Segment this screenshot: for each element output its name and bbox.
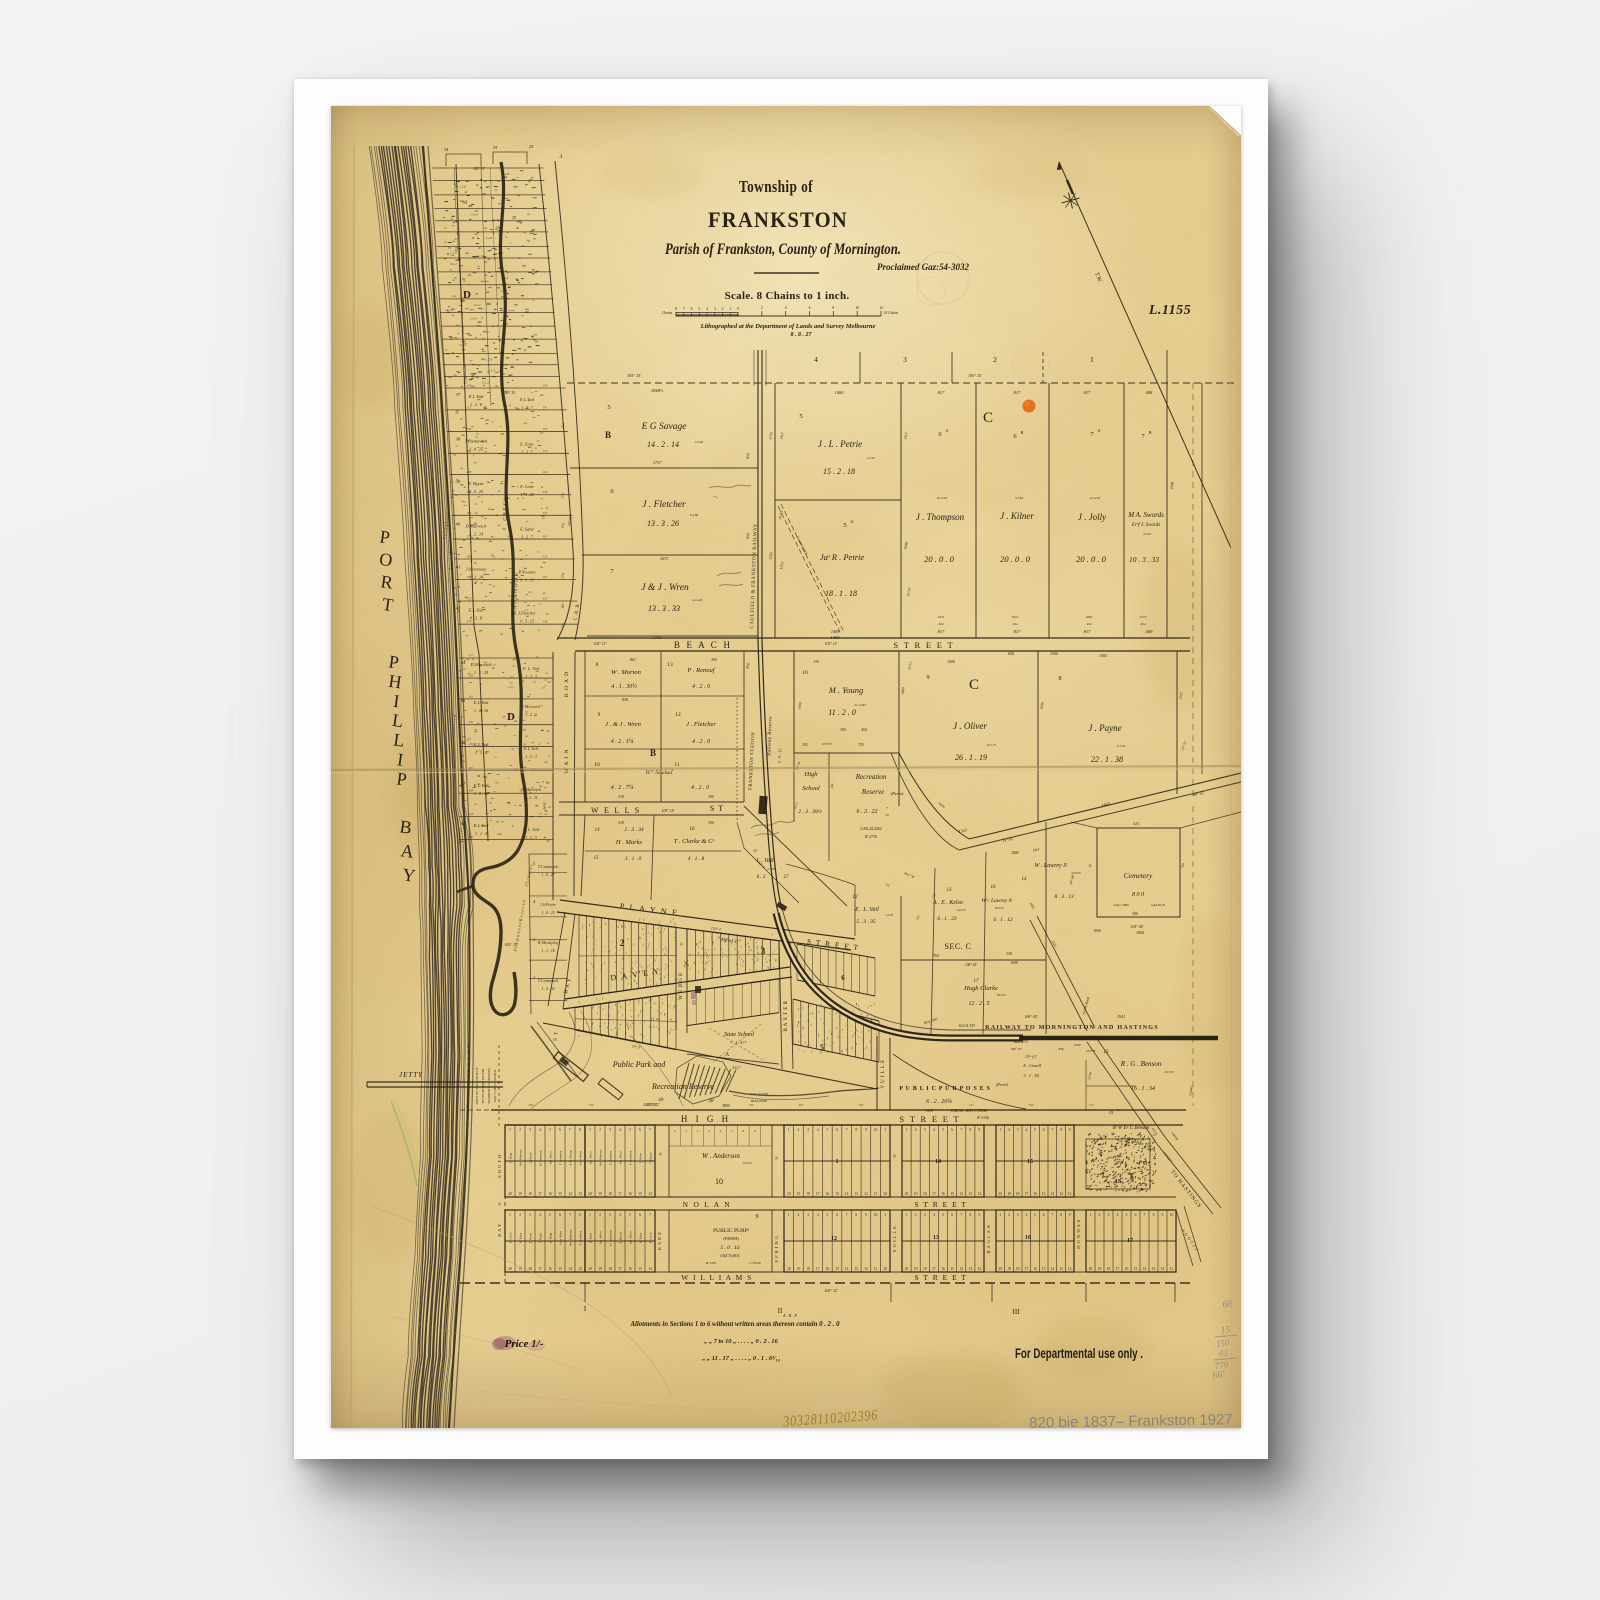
- svg-text:GAZ.J.1866: GAZ.J.1866: [1113, 903, 1129, 907]
- svg-text:16 . 1 . 34: 16 . 1 . 34: [1131, 1085, 1155, 1092]
- svg-text:21.12.83: 21.12.83: [854, 703, 866, 707]
- svg-text:494: 494: [1086, 622, 1091, 626]
- svg-text:13: 13: [969, 1267, 973, 1271]
- svg-text:S T R E E T: S T R E E T: [915, 1200, 968, 1209]
- svg-text:PUBLIC PURPˢ: PUBLIC PURPˢ: [713, 1228, 750, 1234]
- svg-text:0 . 3 . 13: 0 . 3 . 13: [520, 619, 533, 623]
- svg-text:17: 17: [1116, 1267, 1120, 1271]
- svg-text:105° 15′: 105° 15′: [473, 167, 485, 171]
- svg-text:9: 9: [865, 1213, 867, 1217]
- svg-text:4: 4: [706, 307, 708, 311]
- svg-text:S T: S T: [710, 804, 724, 813]
- svg-text:590: 590: [543, 427, 548, 431]
- svg-text:38: 38: [456, 437, 461, 442]
- svg-text:16: 16: [826, 1192, 830, 1196]
- svg-text:2.4.91: 2.4.91: [867, 456, 875, 460]
- svg-text:19: 19: [914, 1267, 918, 1271]
- svg-text:27: 27: [784, 875, 790, 880]
- svg-text:300: 300: [708, 795, 714, 799]
- svg-text:6 . 1 . 12: 6 . 1 . 12: [993, 917, 1013, 923]
- svg-text:10: 10: [715, 1177, 723, 1186]
- svg-text:520: 520: [469, 812, 474, 816]
- svg-text:15: 15: [594, 856, 600, 861]
- svg-text:817: 817: [1084, 629, 1092, 634]
- svg-text:K.W. Doag: K.W. Doag: [569, 1150, 573, 1166]
- svg-text:6 . 2: 6 . 2: [757, 875, 766, 880]
- svg-text:61: 61: [1218, 1347, 1228, 1358]
- svg-text:478: 478: [467, 384, 472, 388]
- svg-text:6.1.70: 6.1.70: [1117, 744, 1125, 748]
- svg-text:R . G . Benson: R . G . Benson: [1120, 1060, 1162, 1068]
- svg-text:Wᵐ. Lawrey Sʳ: Wᵐ. Lawrey Sʳ: [981, 898, 1013, 904]
- svg-text:477: 477: [469, 654, 474, 658]
- svg-text:GAZ.76.4835: GAZ.76.4835: [720, 1254, 740, 1258]
- svg-text:A. Brera: A. Brera: [619, 1232, 623, 1245]
- svg-text:Sᵗ: Sᵗ: [679, 942, 684, 945]
- svg-text:15: 15: [950, 1267, 954, 1271]
- svg-text:J . Fletcher: J . Fletcher: [642, 500, 686, 510]
- svg-text:A . Casell: A . Casell: [1022, 1063, 1042, 1068]
- svg-text:1 . 2 . 14: 1 . 2 . 14: [469, 531, 483, 536]
- svg-text:7: 7: [1144, 1213, 1146, 1217]
- svg-text:2 . 3 . 34: 2 . 3 . 34: [624, 826, 644, 833]
- svg-text:18: 18: [806, 1267, 810, 1271]
- svg-text:10: 10: [802, 670, 808, 676]
- svg-text:R. Keys: R. Keys: [639, 1232, 643, 1244]
- svg-text:State School: State School: [724, 1032, 754, 1038]
- svg-text:7: 7: [569, 1128, 571, 1132]
- svg-text:612-4 T.P.: 612-4 T.P.: [959, 1023, 975, 1028]
- svg-text:A: A: [400, 840, 416, 862]
- svg-text:1 . 1 . 16: 1 . 1 . 16: [541, 949, 554, 953]
- svg-text:P . Renouf: P . Renouf: [686, 667, 715, 674]
- svg-text:GAZ.73.1963 T.I.M.24034: GAZ.73.1963 T.I.M.24034: [493, 1069, 497, 1102]
- svg-text:R. Keys: R. Keys: [519, 1232, 523, 1244]
- svg-text:Wm Murray: Wm Murray: [519, 1149, 523, 1166]
- svg-text:12: 12: [978, 1267, 982, 1271]
- svg-text:Allotments in Sections 1 to 6: Allotments in Sections 1 to 6 without wr…: [629, 1321, 840, 1328]
- svg-text:16: 16: [826, 1267, 830, 1271]
- svg-text:820 bie 1837– Frankston 1927: 820 bie 1837– Frankston 1927: [1029, 1411, 1233, 1428]
- svg-text:9: 9: [1069, 1213, 1071, 1217]
- svg-text:66′: 66′: [1212, 1369, 1226, 1382]
- svg-text:Wm Murray: Wm Murray: [599, 1149, 603, 1166]
- svg-text:17: 17: [816, 1267, 820, 1271]
- svg-text:817: 817: [938, 390, 946, 395]
- svg-text:541: 541: [469, 720, 474, 724]
- svg-text:A . E . Kelso: A . E . Kelso: [932, 900, 963, 906]
- svg-text:13: 13: [1152, 1267, 1156, 1271]
- svg-text:20: 20: [588, 1192, 592, 1196]
- svg-text:20: 20: [905, 1192, 909, 1196]
- svg-text:Sᵗ: Sᵗ: [497, 1202, 502, 1205]
- svg-text:4: 4: [817, 1128, 819, 1132]
- svg-text:9: 9: [865, 1128, 867, 1132]
- svg-text:1.3.70: 1.3.70: [885, 913, 893, 917]
- svg-text:1310: 1310: [925, 1109, 933, 1113]
- svg-text:18: 18: [1016, 1192, 1020, 1196]
- svg-text:20°5′: 20°5′: [543, 802, 548, 811]
- svg-text:2: 2: [599, 1213, 601, 1217]
- svg-text:13 . 3 . 33: 13 . 3 . 33: [648, 604, 680, 613]
- svg-text:0 . 3 . 13: 0 . 3 . 13: [520, 579, 533, 583]
- svg-text:3: 3: [924, 1128, 926, 1132]
- svg-text:Rᵗ 3336: Rᵗ 3336: [976, 1116, 989, 1120]
- svg-text:5: 5: [607, 404, 610, 411]
- svg-text:1400: 1400: [835, 390, 845, 395]
- svg-text:P U B L I C P U R P O S E S: P U B L I C P U R P O S E S: [899, 1086, 990, 1092]
- svg-text:E G Savage: E G Savage: [641, 422, 687, 432]
- svg-text:20: 20: [999, 1192, 1003, 1196]
- svg-text:T. Graham: T. Graham: [559, 1150, 563, 1165]
- svg-text:1 . 0 . 27: 1 . 0 . 27: [541, 873, 555, 877]
- svg-text:19: 19: [598, 1267, 602, 1271]
- svg-text:3: 3: [1017, 1128, 1019, 1132]
- svg-text:1884: 1884: [1086, 615, 1093, 619]
- svg-text:12: 12: [1161, 1267, 1165, 1271]
- svg-text:5: 5: [1034, 1128, 1036, 1132]
- svg-text:16: 16: [941, 1267, 945, 1271]
- svg-text:T. Wren: T. Wren: [529, 1233, 533, 1244]
- svg-text:H I G H: H I G H: [681, 1114, 731, 1124]
- svg-text:4 . 1 . 30½: 4 . 1 . 30½: [611, 683, 637, 690]
- svg-text:Jas. Wren: Jas. Wren: [619, 1151, 623, 1165]
- svg-text:1000: 1000: [1093, 929, 1101, 933]
- svg-text:18: 18: [923, 1192, 927, 1196]
- svg-text:13.1.73: 13.1.73: [986, 743, 996, 747]
- svg-text:4: 4: [533, 899, 535, 904]
- svg-text:2: 2: [519, 1213, 521, 1217]
- svg-text:15: 15: [1134, 1267, 1138, 1271]
- svg-text:2: 2: [761, 306, 763, 310]
- svg-text:16: 16: [628, 1267, 632, 1271]
- svg-text:7: 7: [960, 1213, 962, 1217]
- svg-text:Y U I L L E: Y U I L L E: [881, 1059, 886, 1088]
- svg-text:46: 46: [461, 740, 466, 745]
- svg-text:16: 16: [1033, 1267, 1037, 1271]
- svg-text:5: 5: [549, 1128, 551, 1132]
- svg-text:5: 5: [826, 1128, 828, 1132]
- svg-text:6: 6: [836, 1213, 838, 1217]
- svg-text:3: 3: [559, 154, 563, 160]
- svg-text:Township of: Township of: [739, 177, 813, 196]
- svg-text:33: 33: [493, 145, 498, 150]
- svg-text:105° 15′: 105° 15′: [825, 642, 838, 646]
- svg-text:2: 2: [915, 1213, 917, 1217]
- svg-text:1 . 2 . 3: 1 . 2 . 3: [525, 755, 536, 759]
- svg-text:20: 20: [883, 1267, 887, 1271]
- svg-text:Jas. Wren: Jas. Wren: [629, 1231, 633, 1245]
- svg-text:3: 3: [533, 937, 535, 942]
- svg-text:1: 1: [884, 1213, 886, 1217]
- svg-text:3: 3: [529, 1213, 531, 1217]
- svg-text:14: 14: [935, 1159, 941, 1165]
- svg-text:M . Young: M . Young: [828, 685, 863, 695]
- svg-text:1 . 2 . 7: 1 . 2 . 7: [521, 451, 533, 455]
- svg-text:16: 16: [1125, 1267, 1129, 1271]
- svg-text:B: B: [605, 430, 611, 440]
- svg-text:447: 447: [543, 535, 548, 539]
- svg-text:1931: 1931: [938, 615, 945, 619]
- svg-text:8: 8: [743, 1129, 745, 1133]
- svg-text:D.Marwick: D.Marwick: [520, 787, 542, 792]
- svg-text:2: 2: [674, 1129, 676, 1133]
- svg-text:8: 8: [1153, 1213, 1155, 1217]
- svg-text:34: 34: [444, 147, 449, 152]
- svg-text:41: 41: [456, 565, 461, 570]
- svg-text:J & J . Wren: J & J . Wren: [641, 583, 689, 593]
- svg-text:1000: 1000: [1136, 930, 1144, 935]
- svg-text:20 . 0 . 0: 20 . 0 . 0: [1000, 554, 1031, 564]
- svg-text:14: 14: [1051, 1192, 1055, 1196]
- svg-text:A. Cook: A. Cook: [649, 1232, 653, 1244]
- svg-text:III: III: [1013, 1308, 1021, 1316]
- svg-text:4: 4: [1117, 1213, 1119, 1217]
- svg-text:1.2.8: 1.2.8: [500, 289, 507, 293]
- svg-text:14.3.36: 14.3.36: [743, 1161, 753, 1165]
- svg-text:12.12.91: 12.12.91: [1089, 496, 1101, 500]
- svg-text:1500: 1500: [1050, 651, 1059, 656]
- svg-text:6: 6: [720, 1129, 722, 1133]
- svg-text:Y U I L L E: Y U I L L E: [892, 1226, 897, 1253]
- svg-text:7: 7: [649, 1213, 651, 1217]
- svg-text:1: 1: [788, 1128, 790, 1132]
- svg-text:15: 15: [835, 1192, 839, 1196]
- svg-text:458: 458: [543, 620, 548, 624]
- svg-text:300: 300: [1132, 911, 1138, 916]
- svg-text:T.Cattanach: T.Cattanach: [465, 439, 488, 444]
- svg-text:8 . 3 . 13: 8 . 3 . 13: [1054, 894, 1074, 900]
- svg-text:J.S.Petrie: J.S.Petrie: [540, 902, 556, 907]
- svg-text:6 . 3 . 22: 6 . 3 . 22: [857, 809, 878, 815]
- svg-text:536: 536: [469, 674, 474, 678]
- svg-text:3: 3: [529, 1128, 531, 1132]
- svg-text:1 . 1 . 4: 1 . 1 . 4: [475, 831, 487, 836]
- svg-text:RAILWAY TO MORNINGTON: RAILWAY TO MORNINGTON AND HASTINGS: [985, 1024, 1159, 1031]
- svg-text:H . Marks: H . Marks: [615, 839, 643, 846]
- svg-text:12 . 2 . 5: 12 . 2 . 5: [969, 1001, 990, 1007]
- svg-text:Reserve: Reserve: [861, 788, 884, 796]
- svg-text:E.L.Vail: E.L.Vail: [468, 607, 485, 612]
- svg-text:22 . 1 . 38: 22 . 1 . 38: [1091, 755, 1123, 764]
- svg-text:2 . 3 . 39½: 2 . 3 . 39½: [798, 808, 821, 815]
- svg-text:3.4.66: 3.4.66: [695, 440, 704, 444]
- svg-text:C: C: [983, 410, 993, 426]
- svg-text:20: 20: [1089, 1267, 1093, 1271]
- svg-text:4: 4: [697, 1129, 699, 1133]
- svg-text:Hugh Clarke: Hugh Clarke: [963, 985, 998, 992]
- svg-text:E. King: E. King: [509, 1153, 513, 1165]
- svg-text:17: 17: [1025, 1192, 1029, 1196]
- svg-text:W E D G E: W E D G E: [679, 972, 684, 999]
- svg-text:14: 14: [1143, 1267, 1147, 1271]
- svg-text:R. Keys: R. Keys: [589, 1232, 593, 1244]
- svg-text:7: 7: [569, 1213, 571, 1217]
- svg-text:14: 14: [845, 1192, 849, 1196]
- svg-text:449: 449: [1146, 629, 1154, 634]
- svg-text:WHARFAGE PURPOSES: WHARFAGE PURPOSES: [487, 1068, 491, 1104]
- svg-text:817: 817: [1014, 629, 1022, 634]
- svg-text:8: 8: [1060, 1128, 1062, 1132]
- svg-text:6: 6: [559, 1128, 561, 1132]
- svg-text:13: 13: [947, 888, 953, 893]
- svg-text:108° 45′: 108° 45′: [965, 963, 977, 967]
- svg-text:105° 15′: 105° 15′: [627, 373, 641, 378]
- svg-text:130: 130: [813, 660, 819, 664]
- svg-text:Wᵐ Stiebel: Wᵐ Stiebel: [645, 769, 673, 776]
- svg-text:18: 18: [1016, 1267, 1020, 1271]
- svg-text:E . L .Vail: E . L .Vail: [854, 907, 879, 913]
- svg-text:B: B: [650, 748, 656, 758]
- svg-text:3: 3: [609, 1213, 611, 1217]
- svg-text:B E A C H: B E A C H: [674, 640, 732, 650]
- svg-text:17: 17: [1025, 1267, 1029, 1271]
- svg-text:1: 1: [1090, 355, 1094, 364]
- svg-text:12: 12: [864, 1192, 868, 1196]
- svg-text:7: 7: [846, 1213, 848, 1217]
- svg-text:15: 15: [950, 1192, 954, 1196]
- svg-text:11: 11: [874, 1192, 878, 1196]
- svg-text:Proclaimed Gaz:54-3032: Proclaimed Gaz:54-3032: [877, 263, 969, 273]
- svg-text:6: 6: [951, 1128, 953, 1132]
- svg-text:2: 2: [722, 307, 724, 311]
- svg-text:W E L L S: W E L L S: [591, 806, 641, 815]
- svg-text:1.2.8: 1.2.8: [450, 251, 457, 255]
- svg-text:J.Stranway: J.Stranway: [466, 567, 488, 572]
- svg-text:19: 19: [1098, 1267, 1102, 1271]
- svg-text:8 . 8 . 27: 8 . 8 . 27: [791, 332, 813, 338]
- svg-text:15: 15: [558, 1267, 562, 1271]
- svg-text:T . Clarke & Cᵒ: T . Clarke & Cᵒ: [674, 838, 716, 845]
- svg-text:E.L.Vail: E.L.Vail: [519, 397, 535, 402]
- svg-text:Scale. 8 Chains to 1 inch.: Scale. 8 Chains to 1 inch.: [725, 290, 850, 302]
- svg-text:9: 9: [979, 1213, 981, 1217]
- svg-text:9: 9: [756, 1214, 759, 1220]
- svg-text:403: 403: [469, 789, 474, 793]
- svg-text:T. Graham: T. Graham: [579, 1230, 583, 1245]
- svg-text:755: 755: [858, 743, 864, 747]
- svg-text:20: 20: [999, 1267, 1003, 1271]
- svg-text:5: 5: [942, 1213, 944, 1217]
- svg-text:2: 2: [798, 1213, 800, 1217]
- svg-text:4: 4: [539, 1213, 541, 1217]
- svg-text:5: 5: [1126, 1213, 1128, 1217]
- svg-text:H: H: [387, 671, 403, 693]
- svg-text:Jaˢ R . Petrie: Jaˢ R . Petrie: [820, 552, 865, 562]
- svg-text:W . Anderson: W . Anderson: [702, 1152, 740, 1160]
- svg-text:4: 4: [1025, 1128, 1027, 1132]
- svg-text:15: 15: [1109, 1110, 1114, 1115]
- svg-text:13.3.36: 13.3.36: [1165, 1070, 1175, 1074]
- svg-text:569: 569: [543, 384, 548, 388]
- svg-text:2: 2: [1008, 1128, 1010, 1132]
- svg-text:105° 15′: 105° 15′: [504, 942, 518, 947]
- svg-text:10: 10: [874, 1213, 878, 1217]
- svg-text:M A. Swords: M A. Swords: [1127, 511, 1164, 519]
- svg-text:1: 1: [729, 307, 731, 311]
- svg-text:W I L L I A M S: W I L L I A M S: [681, 1273, 753, 1282]
- svg-text:594: 594: [543, 575, 548, 579]
- svg-text:School: School: [802, 785, 820, 792]
- svg-text:10: 10: [855, 306, 859, 310]
- svg-text:S T R E E T: S T R E E T: [893, 640, 954, 650]
- svg-text:523: 523: [543, 555, 548, 559]
- svg-text:4: 4: [817, 1213, 819, 1217]
- svg-text:18.3.34: 18.3.34: [997, 993, 1007, 997]
- svg-text:1505: 1505: [1099, 653, 1107, 658]
- svg-text:475: 475: [467, 620, 472, 624]
- svg-text:Lithographed at the Department: Lithographed at the Department of Lands …: [700, 323, 876, 330]
- svg-text:D: D: [507, 711, 515, 723]
- svg-text:14: 14: [1022, 877, 1028, 882]
- svg-text:16: 16: [548, 1267, 552, 1271]
- svg-text:3: 3: [714, 307, 716, 311]
- svg-text:1848½: 1848½: [651, 388, 664, 393]
- svg-text:8: 8: [579, 1128, 581, 1132]
- svg-text:48: 48: [461, 821, 466, 826]
- svg-text:817: 817: [1084, 390, 1092, 395]
- svg-text:Recreation: Recreation: [855, 773, 887, 781]
- svg-text:13: 13: [578, 1267, 582, 1271]
- svg-text:836: 836: [1058, 1047, 1063, 1051]
- svg-text:P.Noonan: P.Noonan: [517, 570, 536, 575]
- svg-text:15: 15: [1027, 1159, 1033, 1165]
- svg-text:6: 6: [809, 306, 811, 310]
- svg-text:4: 4: [933, 1213, 935, 1217]
- svg-text:R A G L A N: R A G L A N: [986, 1224, 991, 1253]
- svg-text:3: 3: [924, 1213, 926, 1217]
- svg-text:108° 45′: 108° 45′: [1024, 1014, 1038, 1019]
- svg-text:13: 13: [854, 1267, 858, 1271]
- svg-text:487: 487: [469, 835, 474, 839]
- svg-text:„ „ 7 to 10 „: „ „ 7 to 10 „ . . . . „ 0 . 2 . 16: [704, 1338, 778, 1345]
- svg-text:N O L A N: N O L A N: [683, 1200, 732, 1209]
- svg-text:4: 4: [1025, 1213, 1027, 1217]
- svg-text:18: 18: [608, 1192, 612, 1196]
- svg-text:14: 14: [595, 828, 601, 833]
- svg-text:8: 8: [675, 307, 677, 311]
- svg-text:E. Lane: E. Lane: [519, 442, 534, 447]
- svg-text:2: 2: [1008, 1213, 1010, 1217]
- svg-text:5: 5: [698, 307, 700, 311]
- svg-text:13: 13: [1059, 1192, 1063, 1196]
- svg-text:1 . 2 . 14: 1 . 2 . 14: [469, 575, 483, 580]
- svg-text:4: 4: [933, 1128, 935, 1132]
- svg-text:C.76546: C.76546: [749, 1261, 761, 1265]
- svg-text:2: 2: [620, 938, 625, 948]
- svg-text:20: 20: [787, 1267, 791, 1271]
- svg-text:1 . 2 . 8: 1 . 2 . 8: [470, 402, 482, 407]
- svg-text:Rᵗ W Er G Benson: Rᵗ W Er G Benson: [1112, 1125, 1150, 1131]
- svg-text:9: 9: [927, 675, 930, 681]
- svg-text:1713: 1713: [1140, 615, 1147, 619]
- svg-text:508: 508: [467, 427, 472, 431]
- svg-text:537: 537: [543, 511, 548, 515]
- svg-text:23.6.33: 23.6.33: [1072, 871, 1082, 875]
- svg-text:13: 13: [969, 1192, 973, 1196]
- svg-text:1 . 0 . 25: 1 . 0 . 25: [520, 493, 533, 497]
- svg-text:Sᵗ: Sᵗ: [774, 1156, 779, 1159]
- svg-text:Jas. Wren: Jas. Wren: [599, 1231, 603, 1245]
- svg-text:4 . 2 . 0: 4 . 2 . 0: [692, 738, 710, 745]
- svg-text:100° 15′: 100° 15′: [968, 373, 982, 378]
- svg-text:472: 472: [467, 597, 472, 601]
- svg-text:9: 9: [1162, 1213, 1164, 1217]
- svg-text:1 . 2 . 7: 1 . 2 . 7: [521, 535, 533, 539]
- svg-text:K A R S: K A R S: [657, 1232, 662, 1250]
- svg-text:E.L.Vail: E.L.Vail: [523, 746, 539, 751]
- svg-text:16: 16: [628, 1192, 632, 1196]
